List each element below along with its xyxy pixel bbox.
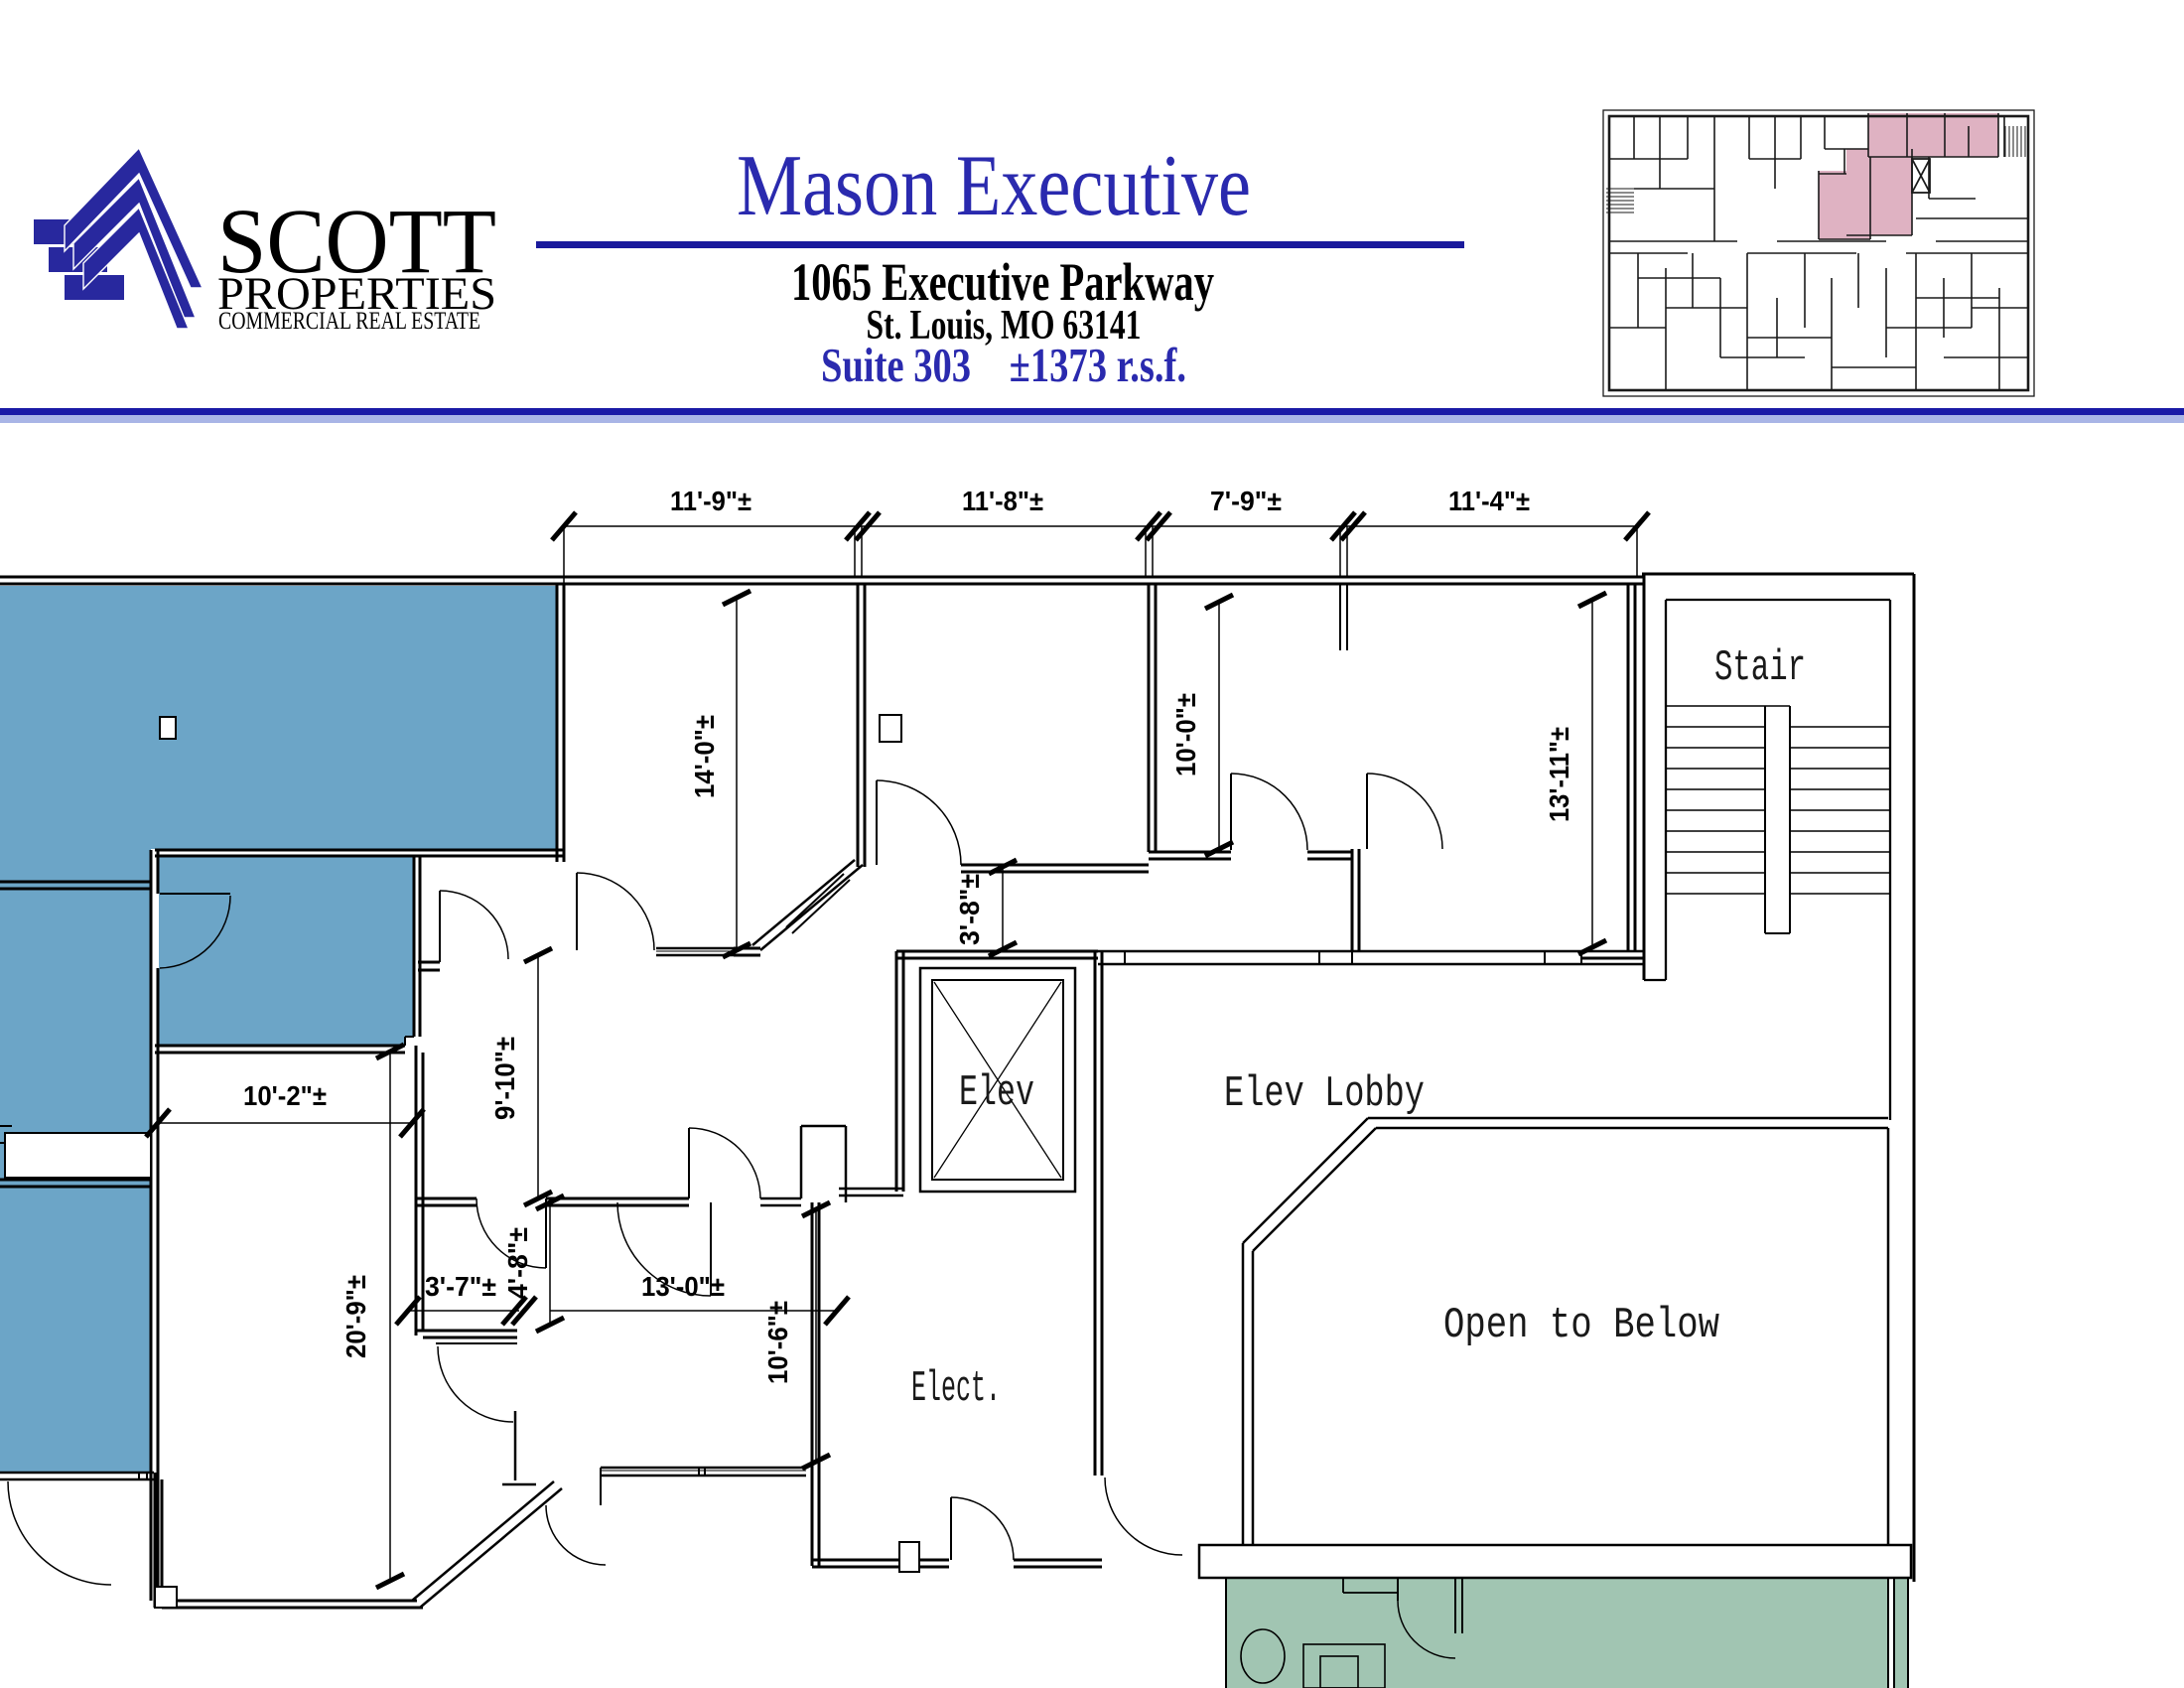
svg-text:10'-2"±: 10'-2"± <box>243 1080 327 1111</box>
svg-text:13'-0"±: 13'-0"± <box>641 1271 725 1302</box>
svg-text:20'-9"±: 20'-9"± <box>341 1275 371 1358</box>
svg-text:Stair: Stair <box>1714 643 1806 693</box>
svg-text:3'-8"±: 3'-8"± <box>954 874 985 945</box>
svg-text:4'-8"±: 4'-8"± <box>502 1227 533 1299</box>
svg-text:7'-9"±: 7'-9"± <box>1210 486 1282 516</box>
svg-text:11'-4"±: 11'-4"± <box>1448 486 1530 516</box>
svg-text:3'-7"±: 3'-7"± <box>425 1271 496 1302</box>
svg-text:9'-10"±: 9'-10"± <box>489 1037 520 1120</box>
svg-text:14'-0"±: 14'-0"± <box>689 715 720 798</box>
svg-text:Open to Below: Open to Below <box>1443 1301 1719 1350</box>
svg-text:Elev Lobby: Elev Lobby <box>1224 1069 1425 1119</box>
svg-text:Mason Executive: Mason Executive <box>737 138 1251 234</box>
svg-text:Suite 303 ±1373 r.s.f.: Suite 303 ±1373 r.s.f. <box>821 338 1186 392</box>
svg-text:10'-6"±: 10'-6"± <box>762 1301 793 1384</box>
svg-text:11'-8"±: 11'-8"± <box>962 486 1043 516</box>
svg-text:Elect.: Elect. <box>911 1364 1001 1414</box>
svg-text:11'-9"±: 11'-9"± <box>670 486 751 516</box>
svg-text:13'-11"±: 13'-11"± <box>1544 727 1574 822</box>
svg-text:Elev: Elev <box>959 1068 1034 1118</box>
svg-text:10'-0"±: 10'-0"± <box>1170 693 1201 776</box>
svg-text:COMMERCIAL REAL ESTATE: COMMERCIAL REAL ESTATE <box>218 308 480 335</box>
